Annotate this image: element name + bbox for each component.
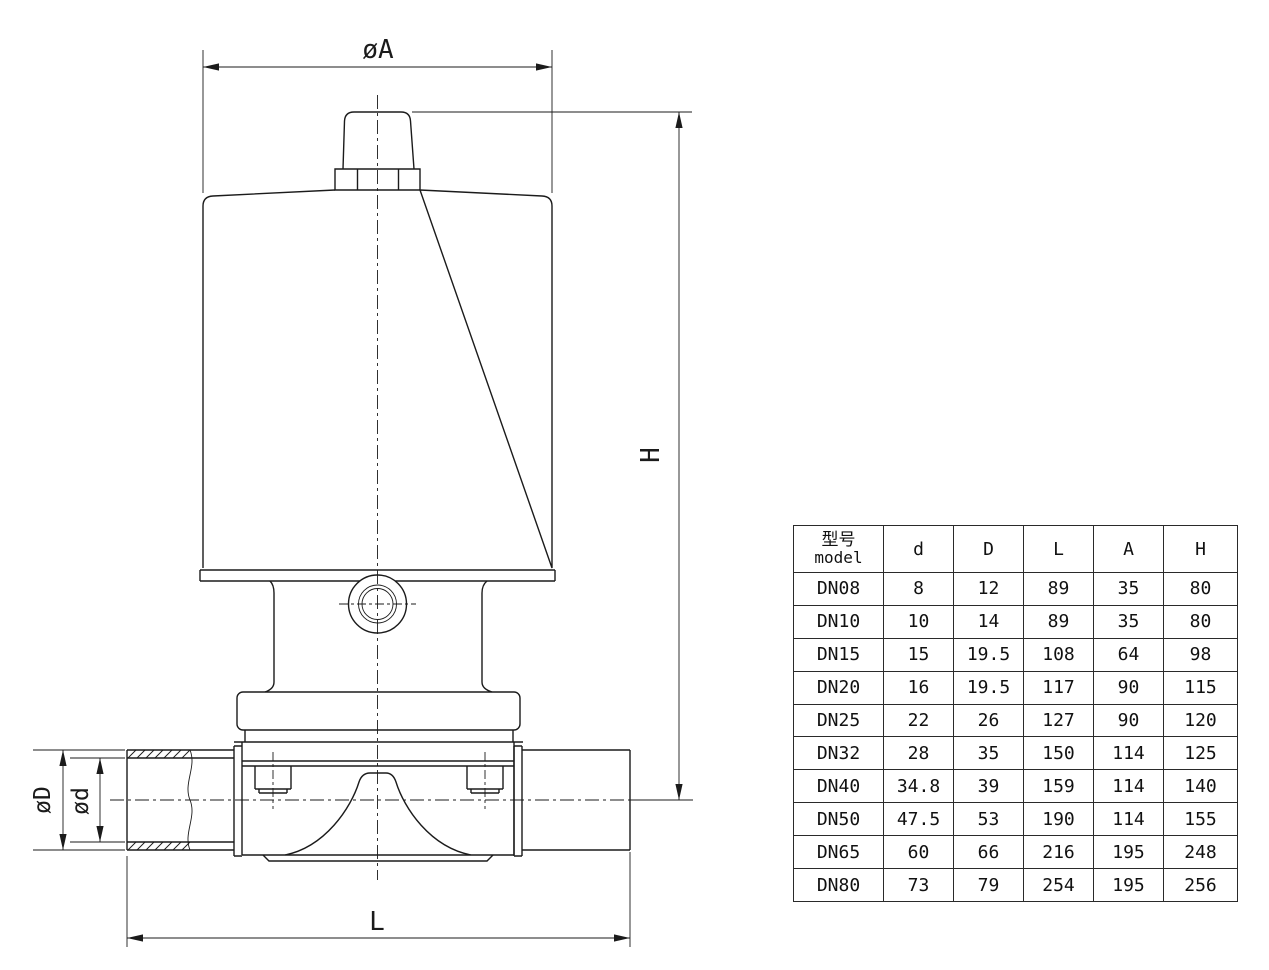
value-cell-L: 89 [1024, 573, 1094, 606]
table-row: DN201619.511790115 [794, 671, 1238, 704]
value-cell-H: 125 [1164, 737, 1238, 770]
model-cell: DN10 [794, 605, 884, 638]
value-cell-H: 155 [1164, 803, 1238, 836]
value-cell-H: 248 [1164, 836, 1238, 869]
value-cell-d: 22 [884, 704, 954, 737]
value-cell-H: 256 [1164, 869, 1238, 902]
table-row: DN4034.839159114140 [794, 770, 1238, 803]
spec-table-body: DN08812893580DN101014893580DN151519.5108… [794, 573, 1238, 902]
value-cell-D: 66 [954, 836, 1024, 869]
value-cell-H: 115 [1164, 671, 1238, 704]
table-row: DN08812893580 [794, 573, 1238, 606]
value-cell-d: 34.8 [884, 770, 954, 803]
header-L: L [1024, 526, 1094, 573]
model-cell: DN65 [794, 836, 884, 869]
value-cell-D: 19.5 [954, 638, 1024, 671]
header-model: 型号 model [794, 526, 884, 573]
value-cell-A: 35 [1094, 605, 1164, 638]
dim-label-a: øA [362, 35, 394, 65]
header-H: H [1164, 526, 1238, 573]
value-cell-H: 80 [1164, 605, 1238, 638]
value-cell-D: 14 [954, 605, 1024, 638]
value-cell-d: 60 [884, 836, 954, 869]
value-cell-d: 15 [884, 638, 954, 671]
value-cell-A: 64 [1094, 638, 1164, 671]
value-cell-L: 108 [1024, 638, 1094, 671]
value-cell-D: 53 [954, 803, 1024, 836]
value-cell-L: 254 [1024, 869, 1094, 902]
table-row: DN25222612790120 [794, 704, 1238, 737]
header-A: A [1094, 526, 1164, 573]
value-cell-A: 90 [1094, 671, 1164, 704]
model-cell: DN40 [794, 770, 884, 803]
value-cell-d: 28 [884, 737, 954, 770]
actuator-neck [265, 581, 492, 692]
table-row: DN151519.51086498 [794, 638, 1238, 671]
header-d: d [884, 526, 954, 573]
value-cell-A: 195 [1094, 836, 1164, 869]
dim-label-h: H [636, 447, 666, 463]
value-cell-A: 90 [1094, 704, 1164, 737]
bonnet-flange [237, 692, 520, 742]
value-cell-H: 98 [1164, 638, 1238, 671]
dimension-l: L [127, 852, 630, 947]
value-cell-D: 79 [954, 869, 1024, 902]
value-cell-d: 47.5 [884, 803, 954, 836]
model-cell: DN80 [794, 869, 884, 902]
value-cell-A: 114 [1094, 770, 1164, 803]
value-cell-D: 39 [954, 770, 1024, 803]
value-cell-A: 114 [1094, 803, 1164, 836]
value-cell-H: 80 [1164, 573, 1238, 606]
model-cell: DN25 [794, 704, 884, 737]
value-cell-D: 19.5 [954, 671, 1024, 704]
value-cell-D: 35 [954, 737, 1024, 770]
value-cell-L: 159 [1024, 770, 1094, 803]
header-model-zh: 型号 [794, 532, 883, 550]
model-cell: DN50 [794, 803, 884, 836]
centerlines [110, 95, 652, 880]
model-cell: DN32 [794, 737, 884, 770]
value-cell-H: 120 [1164, 704, 1238, 737]
value-cell-H: 140 [1164, 770, 1238, 803]
value-cell-d: 8 [884, 573, 954, 606]
value-cell-L: 89 [1024, 605, 1094, 638]
header-D: D [954, 526, 1024, 573]
spec-table-header: 型号 model d D L A H [794, 526, 1238, 573]
model-cell: DN08 [794, 573, 884, 606]
value-cell-L: 127 [1024, 704, 1094, 737]
valve-body [234, 742, 523, 861]
spec-table: 型号 model d D L A H DN08812893580DN101014… [793, 525, 1238, 902]
value-cell-A: 114 [1094, 737, 1164, 770]
dim-label-d-outer: øD [30, 786, 56, 814]
value-cell-d: 73 [884, 869, 954, 902]
value-cell-L: 216 [1024, 836, 1094, 869]
value-cell-d: 16 [884, 671, 954, 704]
value-cell-D: 26 [954, 704, 1024, 737]
value-cell-A: 35 [1094, 573, 1164, 606]
header-model-en: model [794, 550, 883, 567]
value-cell-A: 195 [1094, 869, 1164, 902]
table-row: DN807379254195256 [794, 869, 1238, 902]
dim-label-l: L [369, 907, 385, 937]
table-row: DN101014893580 [794, 605, 1238, 638]
table-row: DN656066216195248 [794, 836, 1238, 869]
value-cell-D: 12 [954, 573, 1024, 606]
technical-drawing-page: øA H øD ød L [0, 0, 1269, 970]
model-cell: DN20 [794, 671, 884, 704]
value-cell-d: 10 [884, 605, 954, 638]
value-cell-L: 190 [1024, 803, 1094, 836]
value-cell-L: 150 [1024, 737, 1094, 770]
model-cell: DN15 [794, 638, 884, 671]
table-row: DN322835150114125 [794, 737, 1238, 770]
value-cell-L: 117 [1024, 671, 1094, 704]
dim-label-d-inner: ød [68, 787, 94, 815]
table-row: DN5047.553190114155 [794, 803, 1238, 836]
